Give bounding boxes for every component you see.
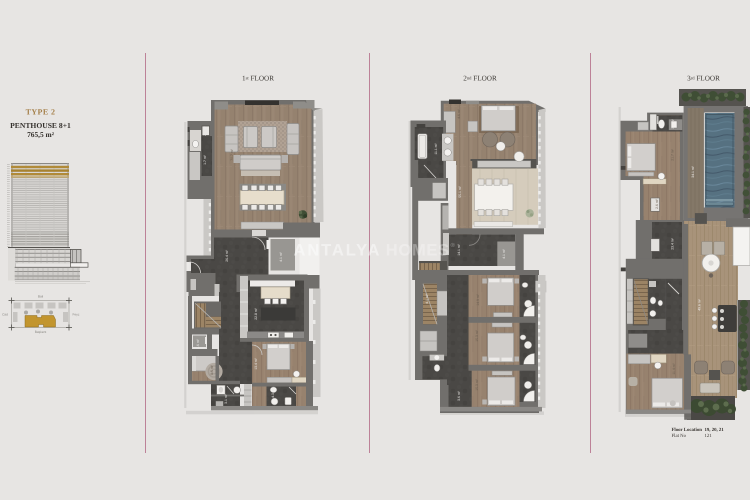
- svg-text:TYPE 2: TYPE 2: [26, 108, 56, 117]
- svg-text:19, 20, 21: 19, 20, 21: [705, 427, 725, 433]
- svg-text:4.3 m²: 4.3 m²: [271, 387, 275, 397]
- svg-text:®: ®: [451, 242, 456, 249]
- svg-text:14.1 m²: 14.1 m²: [457, 243, 461, 255]
- svg-text:HOMES: HOMES: [386, 242, 450, 260]
- svg-text:PENTHOUSE 8+1: PENTHOUSE 8+1: [10, 121, 71, 130]
- svg-text:14.9 m²: 14.9 m²: [476, 293, 480, 305]
- svg-text:121: 121: [705, 433, 713, 439]
- svg-text:70.7 m²: 70.7 m²: [230, 148, 234, 160]
- svg-text:3.1 m²: 3.1 m²: [671, 118, 675, 128]
- svg-text:4.6 m²: 4.6 m²: [457, 108, 461, 118]
- svg-text:8.5 m²: 8.5 m²: [210, 364, 214, 374]
- svg-text:22.8 m²: 22.8 m²: [254, 307, 258, 319]
- svg-text:2.1 m²: 2.1 m²: [203, 125, 207, 135]
- svg-text:21.7 m²: 21.7 m²: [671, 148, 675, 160]
- svg-text:15.3 m²: 15.3 m²: [475, 329, 479, 341]
- svg-text:Flat No: Flat No: [672, 433, 687, 439]
- svg-text:4.1 m²: 4.1 m²: [425, 293, 429, 303]
- svg-text:Bali: Bali: [38, 295, 44, 299]
- svg-text:55.1 m²: 55.1 m²: [458, 185, 462, 197]
- svg-text:ANTALYA: ANTALYA: [294, 242, 382, 260]
- svg-text:49.6 m²: 49.6 m²: [697, 298, 701, 310]
- svg-text:1.7 m²: 1.7 m²: [203, 154, 207, 164]
- svg-text:765,5 m²: 765,5 m²: [27, 130, 55, 139]
- svg-text:23.4 m²: 23.4 m²: [670, 237, 674, 249]
- svg-text:3.1 m²: 3.1 m²: [224, 393, 228, 403]
- svg-text:34.1 m²: 34.1 m²: [691, 165, 695, 177]
- svg-text:3.6 m²: 3.6 m²: [457, 390, 461, 400]
- svg-text:Başkent: Başkent: [35, 330, 47, 334]
- svg-text:26.4 m²: 26.4 m²: [225, 249, 229, 261]
- svg-text:4.1 m²: 4.1 m²: [502, 248, 506, 258]
- svg-text:11.4 m²: 11.4 m²: [672, 363, 676, 375]
- svg-text:13.4 m²: 13.4 m²: [254, 357, 258, 369]
- svg-text:1.6 m²: 1.6 m²: [196, 338, 200, 348]
- svg-text:15.3 m²: 15.3 m²: [475, 378, 479, 390]
- svg-text:2.6 m²: 2.6 m²: [655, 198, 659, 208]
- svg-text:4.1 m²: 4.1 m²: [279, 251, 283, 261]
- svg-text:Cad: Cad: [2, 313, 8, 317]
- svg-text:Feyz: Feyz: [73, 313, 80, 317]
- svg-text:11.1 m²: 11.1 m²: [434, 143, 438, 155]
- svg-text:Floor Location: Floor Location: [672, 427, 703, 433]
